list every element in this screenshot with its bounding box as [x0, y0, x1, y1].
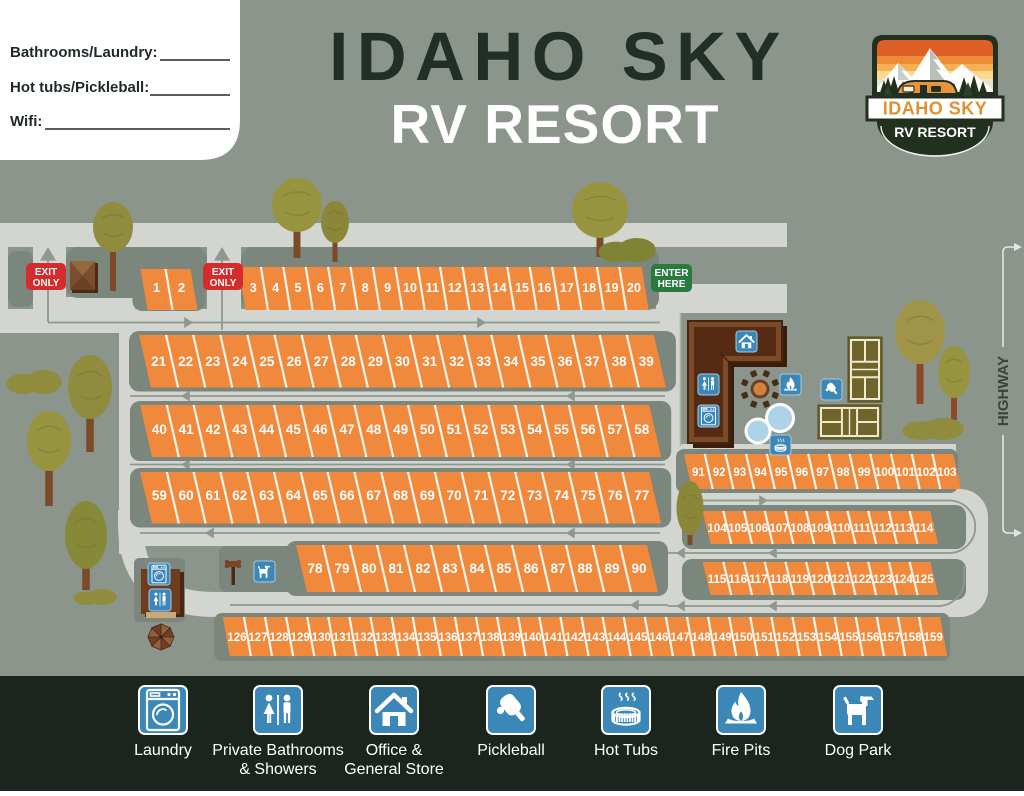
svg-text:HIGHWAY: HIGHWAY [995, 356, 1012, 426]
svg-text:96: 96 [796, 467, 809, 479]
svg-text:108: 108 [790, 523, 810, 535]
svg-text:72: 72 [500, 488, 515, 503]
svg-text:100: 100 [875, 467, 894, 479]
svg-text:8: 8 [362, 281, 369, 295]
svg-text:40: 40 [152, 422, 167, 437]
svg-text:75: 75 [581, 488, 597, 503]
svg-text:EXIT: EXIT [212, 267, 234, 278]
svg-text:47: 47 [339, 422, 354, 437]
svg-text:107: 107 [770, 523, 789, 535]
svg-text:31: 31 [422, 354, 438, 369]
svg-text:9: 9 [384, 281, 391, 295]
svg-text:30: 30 [395, 354, 410, 369]
svg-text:6: 6 [317, 281, 324, 295]
svg-text:82: 82 [415, 561, 430, 576]
svg-text:117: 117 [749, 574, 768, 586]
svg-text:27: 27 [314, 354, 329, 369]
svg-text:13: 13 [470, 281, 484, 295]
svg-text:44: 44 [259, 422, 275, 437]
svg-text:133: 133 [375, 632, 394, 644]
svg-text:105: 105 [728, 523, 748, 535]
svg-text:129: 129 [291, 632, 310, 644]
svg-text:94: 94 [754, 467, 767, 479]
svg-text:4: 4 [272, 281, 279, 295]
svg-text:81: 81 [388, 561, 404, 576]
svg-text:5: 5 [295, 281, 302, 295]
svg-text:110: 110 [832, 523, 851, 535]
svg-text:89: 89 [604, 561, 619, 576]
svg-text:HERE: HERE [658, 279, 686, 290]
svg-text:80: 80 [361, 561, 376, 576]
svg-text:90: 90 [631, 561, 646, 576]
svg-text:15: 15 [515, 281, 529, 295]
svg-text:69: 69 [420, 488, 435, 503]
svg-text:92: 92 [713, 467, 726, 479]
svg-text:3: 3 [250, 281, 257, 295]
svg-text:38: 38 [612, 354, 628, 369]
svg-text:145: 145 [628, 632, 648, 644]
svg-text:20: 20 [627, 281, 641, 295]
svg-text:51: 51 [447, 422, 463, 437]
svg-text:79: 79 [334, 561, 349, 576]
svg-text:ENTER: ENTER [655, 268, 690, 279]
svg-text:148: 148 [691, 632, 711, 644]
svg-text:76: 76 [607, 488, 623, 503]
svg-text:83: 83 [442, 561, 458, 576]
svg-text:49: 49 [393, 422, 408, 437]
svg-text:125: 125 [914, 574, 934, 586]
svg-text:23: 23 [205, 354, 221, 369]
svg-text:115: 115 [708, 574, 727, 586]
svg-text:24: 24 [232, 354, 248, 369]
svg-text:135: 135 [417, 632, 437, 644]
svg-text:17: 17 [560, 281, 574, 295]
svg-text:127: 127 [248, 632, 267, 644]
svg-text:137: 137 [459, 632, 478, 644]
svg-text:119: 119 [791, 574, 810, 586]
svg-text:147: 147 [670, 632, 689, 644]
svg-text:43: 43 [232, 422, 248, 437]
svg-text:58: 58 [634, 422, 650, 437]
svg-text:103: 103 [937, 467, 956, 479]
svg-text:122: 122 [852, 574, 871, 586]
svg-text:14: 14 [493, 281, 507, 295]
svg-text:84: 84 [469, 561, 485, 576]
svg-text:70: 70 [447, 488, 462, 503]
svg-text:59: 59 [152, 488, 167, 503]
svg-text:61: 61 [205, 488, 221, 503]
svg-text:62: 62 [232, 488, 247, 503]
svg-text:154: 154 [818, 632, 838, 644]
svg-text:114: 114 [915, 523, 934, 535]
svg-text:74: 74 [554, 488, 570, 503]
svg-text:118: 118 [770, 574, 789, 586]
svg-text:56: 56 [581, 422, 597, 437]
svg-text:46: 46 [313, 422, 329, 437]
svg-text:12: 12 [448, 281, 462, 295]
svg-text:95: 95 [775, 467, 788, 479]
svg-text:54: 54 [527, 422, 543, 437]
svg-text:39: 39 [639, 354, 654, 369]
svg-text:116: 116 [728, 574, 747, 586]
svg-text:73: 73 [527, 488, 543, 503]
svg-text:104: 104 [707, 523, 727, 535]
svg-text:RV RESORT: RV RESORT [391, 93, 720, 155]
svg-text:136: 136 [438, 632, 457, 644]
svg-text:138: 138 [481, 632, 501, 644]
svg-text:Pickleball: Pickleball [477, 742, 545, 759]
svg-text:143: 143 [586, 632, 605, 644]
svg-text:52: 52 [473, 422, 488, 437]
svg-text:21: 21 [151, 354, 167, 369]
svg-text:128: 128 [270, 632, 290, 644]
svg-text:156: 156 [860, 632, 879, 644]
svg-text:29: 29 [368, 354, 383, 369]
svg-text:Laundry: Laundry [134, 742, 192, 759]
svg-text:65: 65 [313, 488, 329, 503]
svg-text:113: 113 [894, 523, 913, 535]
svg-text:139: 139 [502, 632, 521, 644]
svg-text:106: 106 [749, 523, 768, 535]
svg-text:General Store: General Store [344, 761, 444, 778]
svg-text:55: 55 [554, 422, 570, 437]
svg-text:150: 150 [734, 632, 753, 644]
svg-text:97: 97 [816, 467, 829, 479]
svg-text:109: 109 [811, 523, 830, 535]
svg-text:Private Bathrooms: Private Bathrooms [212, 742, 344, 759]
svg-text:141: 141 [544, 632, 564, 644]
svg-text:28: 28 [341, 354, 357, 369]
svg-text:93: 93 [733, 467, 746, 479]
svg-text:18: 18 [582, 281, 596, 295]
svg-text:ONLY: ONLY [210, 278, 237, 289]
svg-text:131: 131 [333, 632, 353, 644]
svg-text:120: 120 [811, 574, 830, 586]
svg-text:101: 101 [896, 467, 916, 479]
svg-text:41: 41 [179, 422, 195, 437]
svg-text:112: 112 [873, 523, 892, 535]
svg-text:99: 99 [858, 467, 871, 479]
svg-text:86: 86 [523, 561, 539, 576]
svg-text:63: 63 [259, 488, 275, 503]
svg-text:153: 153 [797, 632, 816, 644]
svg-text:57: 57 [607, 422, 622, 437]
svg-text:Dog Park: Dog Park [825, 742, 893, 759]
svg-text:16: 16 [537, 281, 551, 295]
svg-text:32: 32 [449, 354, 464, 369]
svg-text:111: 111 [853, 523, 872, 535]
svg-text:149: 149 [713, 632, 732, 644]
svg-text:Wifi:: Wifi: [10, 113, 42, 130]
svg-text:34: 34 [503, 354, 519, 369]
svg-text:36: 36 [557, 354, 573, 369]
svg-text:35: 35 [530, 354, 546, 369]
svg-text:53: 53 [500, 422, 516, 437]
svg-text:132: 132 [354, 632, 373, 644]
svg-text:Bathrooms/Laundry:: Bathrooms/Laundry: [10, 44, 158, 61]
svg-text:Fire Pits: Fire Pits [712, 742, 771, 759]
svg-text:71: 71 [473, 488, 489, 503]
svg-text:151: 151 [755, 632, 775, 644]
svg-text:87: 87 [550, 561, 565, 576]
svg-text:& Showers: & Showers [239, 761, 316, 778]
svg-text:7: 7 [339, 281, 346, 295]
svg-text:48: 48 [366, 422, 382, 437]
svg-text:RV RESORT: RV RESORT [894, 124, 976, 140]
svg-text:IDAHO SKY: IDAHO SKY [329, 18, 789, 95]
svg-text:60: 60 [179, 488, 194, 503]
svg-text:45: 45 [286, 422, 302, 437]
svg-text:64: 64 [286, 488, 302, 503]
svg-text:98: 98 [837, 467, 850, 479]
svg-text:91: 91 [692, 467, 705, 479]
svg-text:123: 123 [873, 574, 892, 586]
svg-text:11: 11 [426, 281, 439, 295]
svg-text:146: 146 [649, 632, 668, 644]
svg-text:88: 88 [577, 561, 593, 576]
svg-text:68: 68 [393, 488, 409, 503]
svg-text:Hot tubs/Pickleball:: Hot tubs/Pickleball: [10, 79, 149, 96]
svg-text:1: 1 [153, 280, 160, 295]
svg-text:Office &: Office & [366, 742, 423, 759]
svg-text:130: 130 [312, 632, 331, 644]
svg-text:140: 140 [523, 632, 542, 644]
svg-text:77: 77 [634, 488, 649, 503]
svg-text:2: 2 [178, 280, 185, 295]
svg-text:102: 102 [917, 467, 936, 479]
svg-text:158: 158 [902, 632, 922, 644]
svg-text:37: 37 [585, 354, 600, 369]
svg-text:50: 50 [420, 422, 435, 437]
svg-text:26: 26 [287, 354, 303, 369]
svg-text:IDAHO SKY: IDAHO SKY [883, 99, 988, 119]
svg-text:19: 19 [605, 281, 619, 295]
svg-text:78: 78 [307, 561, 323, 576]
svg-text:22: 22 [178, 354, 193, 369]
svg-text:25: 25 [259, 354, 275, 369]
svg-text:155: 155 [839, 632, 859, 644]
svg-text:67: 67 [366, 488, 381, 503]
svg-text:33: 33 [476, 354, 492, 369]
svg-text:159: 159 [924, 632, 943, 644]
svg-text:144: 144 [607, 632, 627, 644]
svg-text:66: 66 [339, 488, 355, 503]
svg-text:ONLY: ONLY [33, 278, 60, 289]
svg-text:42: 42 [205, 422, 220, 437]
svg-text:157: 157 [881, 632, 900, 644]
svg-text:134: 134 [396, 632, 416, 644]
svg-text:EXIT: EXIT [35, 267, 57, 278]
svg-text:124: 124 [894, 574, 914, 586]
svg-text:10: 10 [403, 281, 417, 295]
svg-text:126: 126 [227, 632, 246, 644]
svg-text:121: 121 [832, 574, 852, 586]
svg-text:Hot Tubs: Hot Tubs [594, 742, 658, 759]
svg-text:142: 142 [565, 632, 584, 644]
svg-text:152: 152 [776, 632, 795, 644]
svg-text:85: 85 [496, 561, 512, 576]
